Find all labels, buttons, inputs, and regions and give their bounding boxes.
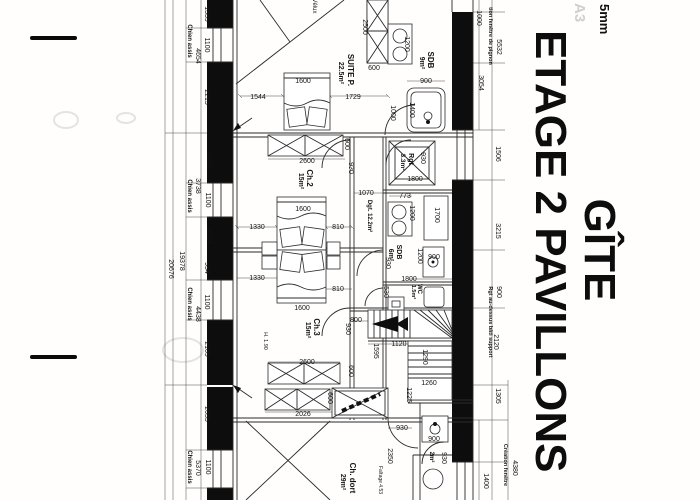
dimension-label: 3738 [194,178,201,194]
room-label-rgt: Rgt [407,153,414,165]
paper-size-watermark: A3 [571,3,588,22]
corner-note: 5mm [597,4,612,34]
dimension-label: Faîtage 4.53 [377,466,383,494]
dimension-label: 773 [399,193,411,200]
dimension-label: 810 [332,224,344,231]
leader-arrows [233,118,252,398]
room-area-ch3: 15m² [304,322,311,339]
bed-ch3 [277,250,326,303]
room-area-ch-dort: 29m² [339,474,346,491]
dimension-label: 600 [343,138,350,150]
title-block: GÎTE ETAGE 2 PAVILLONS [520,30,624,470]
dimension-label: 1000 [389,105,396,121]
dimension-label: 930 [384,257,391,269]
room-label-sdb6: SDB [395,245,402,260]
dimension-label: 5532 [495,39,502,55]
room-area-ch2: 15m² [297,173,304,190]
dimension-label: 800 [350,317,362,324]
dimension-label: 2600 [299,158,315,165]
dimension-label: 1214 [205,228,212,244]
chien-assis-label: Chien assis [186,24,192,58]
dimension-label: 600 [326,392,333,404]
dimension-label: 3054 [477,75,484,91]
dimension-label: 1100 [204,459,211,474]
dimension-label: 900 [428,436,440,443]
room-label-ch3: Ch.3 [312,318,321,336]
dimension-label: 2500 [361,19,368,35]
scan-smudges [54,112,203,362]
dimension-label: 1200 [403,36,410,52]
dimension-label: 1544 [250,94,266,101]
dimension-label: 1290 [421,349,428,365]
dimension-label: 1100 [203,37,210,52]
room-label-suite-p: SUITE P. [346,54,355,86]
dimension-label: 900 [428,254,440,261]
dimension-label: 600 [347,365,354,377]
toilet-icon [423,469,443,489]
dimension-label: 1800 [401,276,417,283]
dimension-label: 1120 [391,341,406,348]
closet-strip-top [367,0,388,63]
dimension-label: 900 [495,286,502,298]
toilet-icon [424,287,444,307]
dimension-label: 1600 [295,78,311,85]
dimension-label: 1698 [205,152,212,168]
room-area-rgt: 3.3m² [399,154,406,172]
sink-icon [392,221,406,235]
dimension-label: 4654 [194,48,201,64]
dimension-label: 1000 [475,10,482,26]
dimension-label: Vélux [311,0,317,14]
chien-assis-label: Chien assis [186,179,192,213]
dimension-label: 2055 [203,406,210,422]
dimension-label: 1330 [249,224,265,231]
room-label-ch2: Ch.2 [305,169,314,187]
dimension-label: 1506 [494,146,501,162]
dimension-label: 2109 [203,341,210,357]
dimension-label: 930 [344,323,351,335]
dimension-label: 530 [382,286,389,298]
dimension-label: 930 [347,162,354,174]
dimension-label: tion fenêtre de pignon [487,7,493,65]
dimension-label: 954 [203,262,210,274]
dimension-label: 1200 [416,248,423,264]
hatched-unit [332,388,388,418]
dimension-label: 900 [420,78,432,85]
dimension-label: 1600 [294,305,310,312]
dimension-label: 4438 [194,306,201,322]
dimension-label: 930 [419,152,426,164]
dimension-label: 1305 [494,388,501,404]
room-label-ch-dort: Ch. dort [348,463,357,494]
dimension-label: 1800 [407,176,423,183]
dimension-label: 1260 [421,380,437,387]
dimension-label: H. 1.90 [262,332,268,350]
room-label-dgt: Dgt. 12.2m² [366,200,373,232]
dimension-label: 1100 [203,294,210,309]
room-area-suite-p: 22.5m² [337,62,344,85]
dimension-label: 5370 [194,460,201,476]
room-area-wc: 1.5m² [410,285,417,300]
title-line-gite: GÎTE [575,30,624,470]
dimension-label: 19378 [178,251,185,271]
dimension-label: 1595 [372,343,379,359]
dimension-label: 1729 [345,94,361,101]
sink-icon [392,205,406,219]
bed-ch2 [277,197,326,250]
dimension-label: 1339 [203,6,210,22]
dimension-label: 2600 [299,359,315,366]
dimension-label: 810 [332,286,344,293]
dimension-label: 1200 [408,205,415,221]
chien-assis-label: Chien assis [186,287,192,321]
left-wall [207,0,233,500]
dimension-label: 3215 [494,223,501,239]
room-label-sdb9: SDB [426,52,435,69]
chien-assis-label: Chien assis [186,450,192,484]
faucet-icon [424,112,432,120]
dimension-label: 1400 [408,102,415,118]
dimension-label: 1700 [433,207,440,223]
wardrobe-suite [268,135,343,156]
room-label-2m2: 2m² [428,452,435,463]
scanned-floor-plan-page: 1339110022151698110012149541100210920551… [0,0,700,500]
dimension-label: Création fenêtre [502,444,508,486]
dimension-label: 2026 [295,411,311,418]
title-line-etage: ETAGE 2 PAVILLONS [525,30,574,470]
dimension-label: 1100 [204,192,211,207]
dimension-label: 1400 [482,473,489,489]
dimension-label: 930 [440,452,447,464]
dimension-label: 2350 [386,448,393,464]
dimension-label: 20676 [167,259,174,279]
room-area-sdb9: 9m² [418,57,425,70]
dimension-label: 600 [368,65,380,72]
dimension-label: 2120 [492,334,499,350]
dimension-label: 1330 [249,275,265,282]
right-wall [452,12,473,500]
dimension-label: 930 [396,425,408,432]
dimension-label: 2215 [203,89,210,105]
dimension-label: 1070 [358,190,374,197]
dimension-label: 1600 [295,206,311,213]
dimension-label: 1225 [405,387,412,403]
dimension-label: 4380 [511,460,518,476]
